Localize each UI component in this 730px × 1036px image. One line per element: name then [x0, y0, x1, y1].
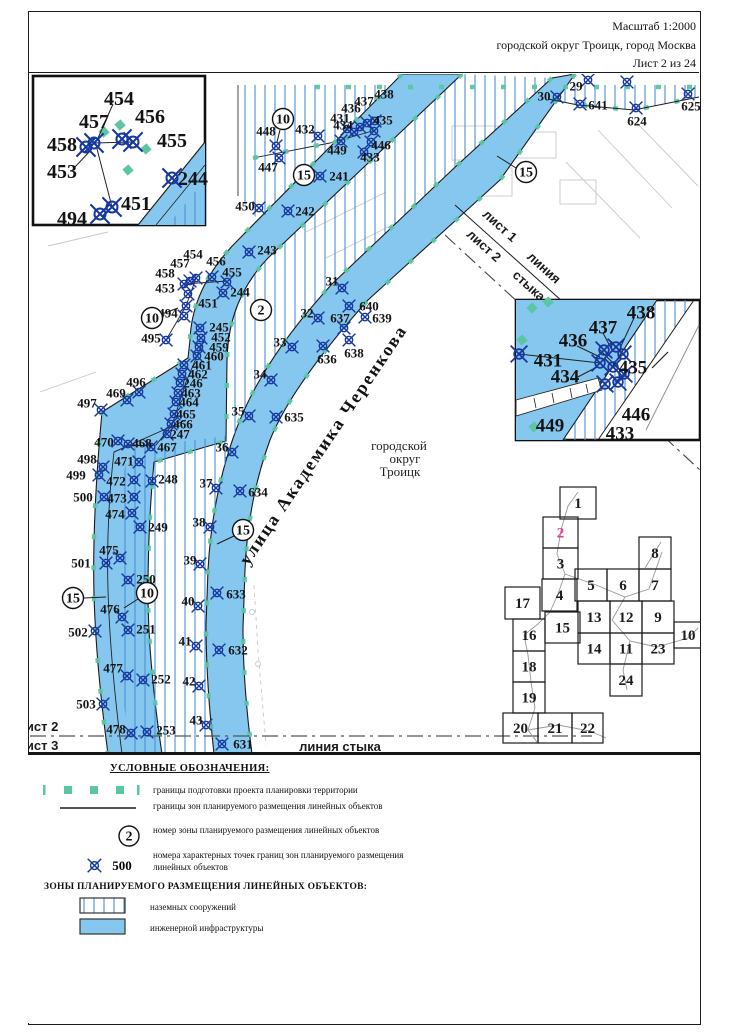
zone-number: 2 — [258, 304, 265, 319]
index-cell: 13 — [578, 601, 610, 633]
zone-number: 10 — [140, 587, 154, 602]
detail-inset-right: 438437436431434435446449433 — [511, 296, 700, 444]
point-marker-icon — [178, 310, 191, 323]
point-label: 624 — [627, 114, 647, 129]
point-marker-icon — [582, 74, 595, 86]
point-label: 633 — [226, 587, 246, 602]
index-route-lines — [524, 492, 698, 742]
detail-inset-top-left: 454457456458455453244451494 — [33, 76, 208, 230]
zone-number: 15 — [66, 592, 80, 607]
zone-number: 15 — [297, 169, 311, 184]
point-label: 458 — [155, 266, 175, 281]
index-cell-number: 11 — [619, 642, 633, 658]
point-label: 501 — [71, 556, 91, 571]
inset2-point-label: 436 — [559, 331, 588, 352]
point-label: 451 — [198, 296, 218, 311]
point-label: 625 — [681, 99, 700, 114]
index-cell-number: 15 — [555, 621, 570, 637]
point-label: 476 — [100, 602, 120, 617]
point-label: 249 — [148, 520, 168, 535]
index-cell-number: 19 — [522, 691, 537, 707]
point-label: 478 — [106, 722, 126, 737]
point-label: 467 — [157, 440, 177, 455]
index-cell-number: 22 — [580, 721, 595, 737]
legend-zone-label: наземных сооружений — [150, 902, 400, 914]
inset1-point-label: 457 — [79, 111, 109, 133]
point-label: 43 — [190, 713, 204, 728]
plan-map-svg: 4484474324314364374384344354494464332414… — [29, 74, 700, 752]
point-label: 253 — [156, 723, 176, 738]
characteristic-point-icon: 500 — [84, 855, 148, 877]
point-label: 29 — [570, 79, 584, 94]
point-label: 241 — [329, 169, 349, 184]
index-cell-number: 17 — [515, 596, 531, 612]
legend-item-label: границы подготовки проекта планировки те… — [153, 785, 403, 797]
zone-number: 15 — [519, 166, 533, 181]
index-cell-number: 3 — [557, 557, 565, 573]
sheet-header: Масштаб 1:2000 городской округ Троицк, г… — [496, 17, 696, 73]
point-label: 243 — [257, 243, 277, 258]
map-point: 495 — [141, 331, 172, 347]
point-label: 502 — [68, 625, 88, 640]
point-label: 496 — [126, 375, 146, 390]
index-cell: 20 — [503, 713, 538, 743]
index-cell-number: 5 — [587, 578, 595, 594]
index-cell-number: 7 — [651, 578, 659, 594]
point-label: 450 — [235, 199, 255, 214]
point-label: 473 — [107, 491, 127, 506]
index-cell: 14 — [578, 633, 610, 664]
inset1-point-label: 244 — [178, 168, 208, 190]
map-canvas: 4484474324314364374384344354494464332414… — [29, 74, 700, 752]
inset2-point-label: 435 — [619, 358, 648, 379]
zone-number-icon: 2 — [116, 823, 142, 849]
index-cell: 18 — [513, 651, 545, 682]
inset1-point-label: 453 — [47, 161, 77, 183]
point-label: 31 — [326, 274, 339, 289]
index-cell-number: 6 — [619, 578, 627, 594]
point-label: 38 — [193, 515, 207, 530]
point-label: 472 — [106, 474, 126, 489]
join-bottom-sheet2: лист 2 — [29, 719, 58, 734]
point-label: 639 — [372, 311, 392, 326]
index-cell: 24 — [610, 664, 642, 696]
map-region: городской округ Троицк, город Москва — [496, 36, 696, 55]
point-label: 449 — [327, 143, 347, 158]
point-marker-icon — [343, 334, 356, 347]
index-cell-number: 21 — [548, 721, 563, 737]
point-label: 437 — [354, 94, 374, 109]
index-cell: 17 — [505, 587, 540, 619]
point-label: 435 — [373, 113, 393, 128]
index-cell-number: 24 — [619, 673, 635, 689]
point-label: 500 — [73, 490, 93, 505]
point-label: 498 — [77, 452, 97, 467]
inset1-point-label: 458 — [47, 134, 77, 156]
legend-zone-label: инженерной инфраструктуры — [150, 923, 400, 935]
point-label: 477 — [103, 661, 123, 676]
point-label: 455 — [222, 265, 242, 280]
point-label: 637 — [330, 311, 350, 326]
point-label: 503 — [76, 697, 96, 712]
index-cell-number: 8 — [651, 546, 659, 562]
point-label: 39 — [184, 553, 198, 568]
point-label: 631 — [233, 737, 253, 752]
inset2-point-label: 434 — [551, 367, 580, 388]
point-label: 434 — [333, 118, 353, 133]
point-label: 635 — [284, 410, 304, 425]
point-label: 42 — [183, 674, 196, 689]
point-label: 30 — [538, 89, 551, 104]
engineering-infra-swatch — [79, 918, 127, 936]
point-label: 32 — [301, 306, 314, 321]
inset2-point-label: 433 — [606, 424, 635, 445]
point-label: 37 — [200, 476, 214, 491]
inset2-point-label: 437 — [589, 318, 618, 339]
index-cell-number: 1 — [574, 496, 582, 512]
inset1-point-label: 455 — [157, 130, 187, 152]
zone-number-circle: 15 — [294, 165, 315, 186]
index-cell: 5 — [575, 569, 607, 601]
point-label: 248 — [158, 472, 178, 487]
point-label: 470 — [94, 435, 114, 450]
inset1-point-label: 451 — [121, 193, 151, 215]
point-label: 474 — [105, 507, 125, 522]
point-marker-icon — [182, 288, 195, 301]
index-cell: 10 — [674, 622, 700, 648]
index-cell-number: 16 — [522, 628, 538, 644]
point-label: 438 — [374, 87, 394, 102]
point-label: 636 — [317, 352, 337, 367]
svg-text:500: 500 — [112, 858, 132, 873]
index-cell: 16 — [513, 619, 545, 651]
index-cell: 4 — [542, 579, 577, 611]
point-label: 641 — [588, 98, 608, 113]
point-label: 468 — [132, 436, 152, 451]
inset1-point-label: 494 — [57, 208, 87, 230]
point-label: 634 — [248, 485, 268, 500]
inset1-point-label: 456 — [135, 106, 165, 128]
zone-number: 10 — [145, 312, 159, 327]
point-label: 495 — [141, 331, 161, 346]
index-cell-number: 10 — [681, 628, 696, 644]
legend-item-label: номер зоны планируемого размещения линей… — [153, 825, 388, 837]
point-label: 447 — [258, 160, 278, 175]
index-cell-number: 23 — [651, 642, 666, 658]
index-cell: 15 — [545, 612, 580, 643]
point-label: 36 — [216, 440, 230, 455]
point-label: 242 — [295, 204, 315, 219]
zone-boundary-line-icon — [58, 805, 138, 811]
map-point: 497 — [77, 396, 107, 417]
inset2-point-label: 438 — [627, 303, 656, 324]
index-cell: 2 — [543, 517, 578, 548]
legend-title: УСЛОВНЫЕ ОБОЗНАЧЕНИЯ: — [110, 763, 270, 774]
point-label: 252 — [151, 672, 171, 687]
index-cell: 9 — [642, 601, 674, 633]
point-label: 432 — [295, 122, 315, 137]
legend-zones-title: ЗОНЫ ПЛАНИРУЕМОГО РАЗМЕЩЕНИЯ ЛИНЕЙНЫХ ОБ… — [44, 882, 367, 892]
index-cell: 21 — [538, 713, 572, 743]
point-label: 469 — [106, 386, 126, 401]
map-point: 451 — [180, 296, 218, 313]
index-cell-number: 18 — [522, 660, 537, 676]
legend-item-label: границы зон планируемого размещения лине… — [153, 801, 388, 813]
join-bottom-line-label: линия стыка — [299, 739, 381, 752]
zone-number: 10 — [276, 113, 290, 128]
index-cell-number: 12 — [619, 610, 634, 626]
inset2-point-label: 446 — [622, 405, 651, 426]
city-label-line3: Троицк — [380, 464, 421, 479]
index-cell: 7 — [639, 569, 671, 601]
index-cell: 19 — [513, 682, 545, 713]
index-cell: 12 — [610, 601, 642, 633]
point-label: 35 — [232, 404, 246, 419]
point-label: 471 — [114, 454, 134, 469]
plan-sheet: Масштаб 1:2000 городской округ Троицк, г… — [0, 0, 730, 1036]
point-label: 638 — [344, 346, 364, 361]
boundary-green-icon — [42, 783, 146, 797]
point-label: 453 — [155, 281, 175, 296]
index-cell-number: 14 — [587, 642, 603, 658]
map-scale: Масштаб 1:2000 — [496, 17, 696, 36]
point-label: 41 — [179, 634, 192, 649]
point-label: 632 — [228, 643, 248, 658]
index-cell: 23 — [642, 633, 674, 664]
index-cell: 8 — [639, 537, 671, 569]
point-label: 499 — [66, 468, 86, 483]
zone-number-circle: 2 — [251, 300, 272, 321]
index-cell-number: 9 — [654, 610, 662, 626]
index-cell: 22 — [572, 713, 603, 743]
index-cell-number-current: 2 — [557, 526, 565, 542]
join-bottom-sheet3: лист 3 — [29, 738, 58, 752]
sheet-number: Лист 2 из 24 — [496, 54, 696, 73]
index-cell-number: 4 — [556, 588, 564, 604]
point-label: 40 — [182, 594, 195, 609]
sheet-index-map: 123456871715131291610141123182419202122 — [503, 487, 700, 743]
point-label: 475 — [99, 543, 119, 558]
index-cell-number: 13 — [587, 610, 602, 626]
point-label: 244 — [230, 285, 250, 300]
legend-item-label: номера характерных точек границ зон план… — [153, 850, 408, 873]
point-marker-icon — [160, 334, 173, 347]
svg-text:2: 2 — [126, 830, 133, 845]
point-label: 251 — [136, 622, 156, 637]
point-label: 34 — [254, 367, 268, 382]
point-label: 497 — [77, 396, 97, 411]
legend: УСЛОВНЫЕ ОБОЗНАЧЕНИЯ: границы подготовки… — [28, 755, 700, 1023]
map-point: 638 — [343, 334, 365, 361]
index-cell-number: 20 — [513, 721, 528, 737]
point-label: 33 — [274, 335, 288, 350]
surface-structures-swatch — [79, 897, 127, 915]
index-cell: 3 — [543, 548, 578, 579]
point-label: 433 — [360, 150, 380, 165]
point-label: 448 — [256, 124, 276, 139]
inset2-point-label: 449 — [536, 416, 565, 437]
inset1-point-label: 454 — [104, 88, 134, 110]
